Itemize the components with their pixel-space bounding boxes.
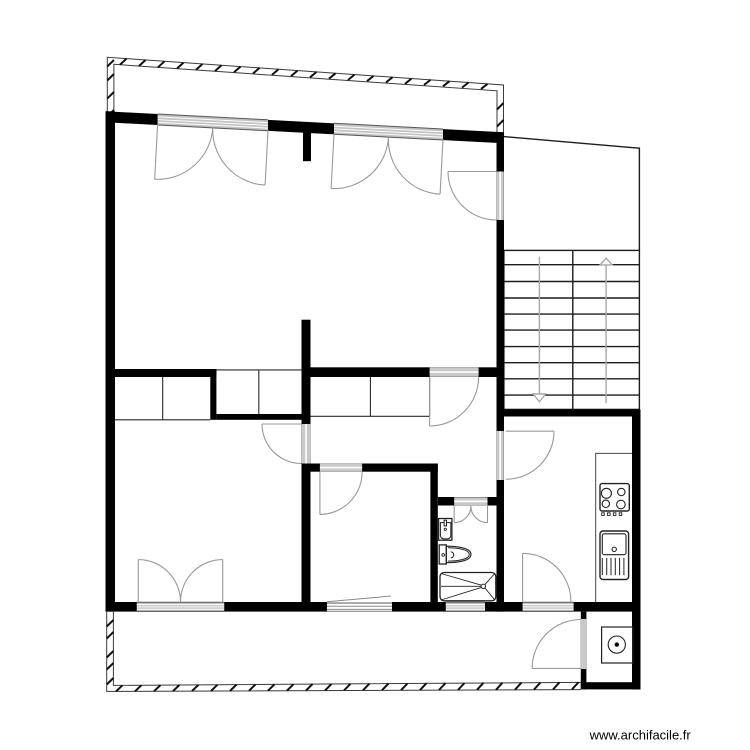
svg-text:www.archifacile.fr: www.archifacile.fr [589, 727, 692, 742]
